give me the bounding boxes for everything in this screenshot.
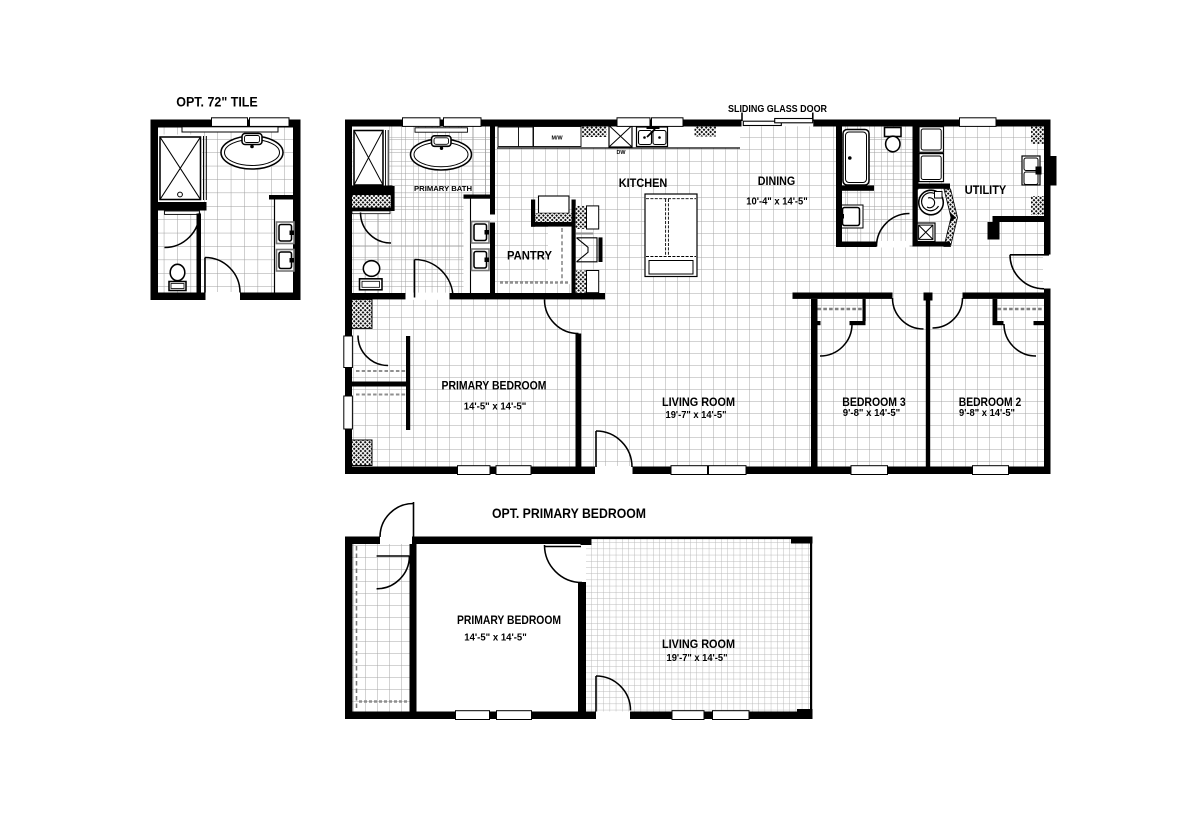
svg-text:19'-7" x 14'-5": 19'-7" x 14'-5" [666, 409, 727, 421]
svg-text:PRIMARY BEDROOM: PRIMARY BEDROOM [457, 613, 561, 627]
svg-text:LIVING ROOM: LIVING ROOM [662, 395, 735, 409]
svg-text:KITCHEN: KITCHEN [619, 176, 668, 190]
svg-text:SLIDING GLASS DOOR: SLIDING GLASS DOOR [728, 104, 828, 115]
svg-text:OPT. 72" TILE: OPT. 72" TILE [176, 95, 258, 110]
svg-text:DW: DW [617, 150, 627, 156]
svg-text:PANTRY: PANTRY [507, 249, 552, 263]
svg-text:14'-5" x 14'-5": 14'-5" x 14'-5" [464, 401, 527, 413]
svg-text:LIVING ROOM: LIVING ROOM [662, 637, 735, 651]
svg-text:9'-8" x 14'-5": 9'-8" x 14'-5" [843, 407, 901, 419]
svg-text:PRIMARY BATH: PRIMARY BATH [414, 184, 472, 193]
svg-text:9'-8" x 14'-5": 9'-8" x 14'-5" [959, 407, 1015, 419]
svg-text:DINING: DINING [758, 174, 796, 188]
svg-text:10'-4" x 14'-5": 10'-4" x 14'-5" [746, 196, 808, 208]
svg-text:PRIMARY BEDROOM: PRIMARY BEDROOM [442, 379, 547, 393]
svg-text:14'-5" x 14'-5": 14'-5" x 14'-5" [464, 632, 527, 644]
svg-text:UTILITY: UTILITY [965, 183, 1007, 197]
svg-text:OPT. PRIMARY BEDROOM: OPT. PRIMARY BEDROOM [492, 506, 646, 521]
svg-text:19'-7" x 14'-5": 19'-7" x 14'-5" [667, 652, 728, 664]
svg-text:M/W: M/W [551, 136, 563, 142]
